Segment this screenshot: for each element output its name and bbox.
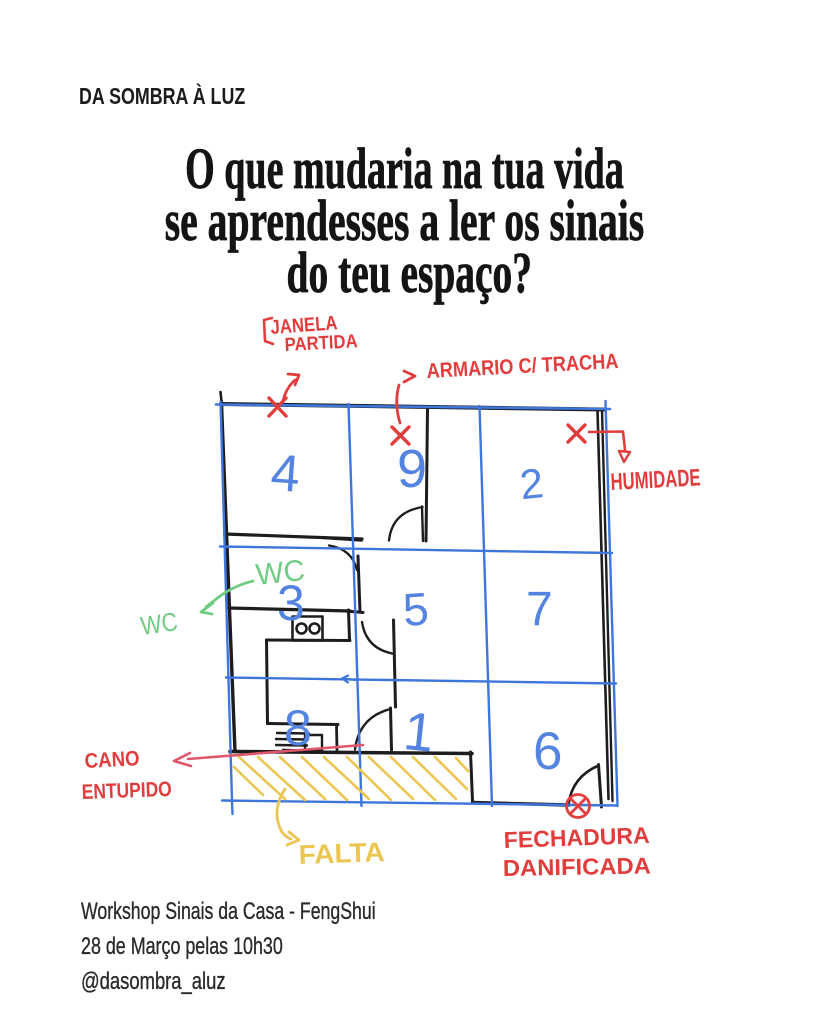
- svg-text:6: 6: [533, 722, 562, 781]
- svg-text:ENTUPIDO: ENTUPIDO: [81, 778, 172, 804]
- svg-text:8: 8: [284, 700, 312, 756]
- svg-text:FALTA: FALTA: [298, 837, 385, 870]
- svg-text:ARMARIO C/ TRACHA: ARMARIO C/ TRACHA: [426, 350, 619, 383]
- svg-text:7: 7: [526, 583, 553, 636]
- svg-text:DANIFICADA: DANIFICADA: [503, 852, 651, 881]
- svg-text:WC: WC: [139, 606, 180, 641]
- svg-text:HUMIDADE: HUMIDADE: [610, 464, 701, 496]
- svg-text:1: 1: [401, 701, 437, 764]
- svg-text:4: 4: [269, 444, 302, 504]
- svg-text:CANO: CANO: [84, 747, 140, 773]
- svg-text:9: 9: [397, 439, 427, 499]
- svg-text:FECHADURA: FECHADURA: [503, 822, 650, 853]
- svg-text:WC: WC: [254, 554, 306, 592]
- svg-text:2: 2: [518, 459, 546, 508]
- svg-text:PARTIDA: PARTIDA: [284, 331, 358, 356]
- svg-text:5: 5: [401, 582, 430, 636]
